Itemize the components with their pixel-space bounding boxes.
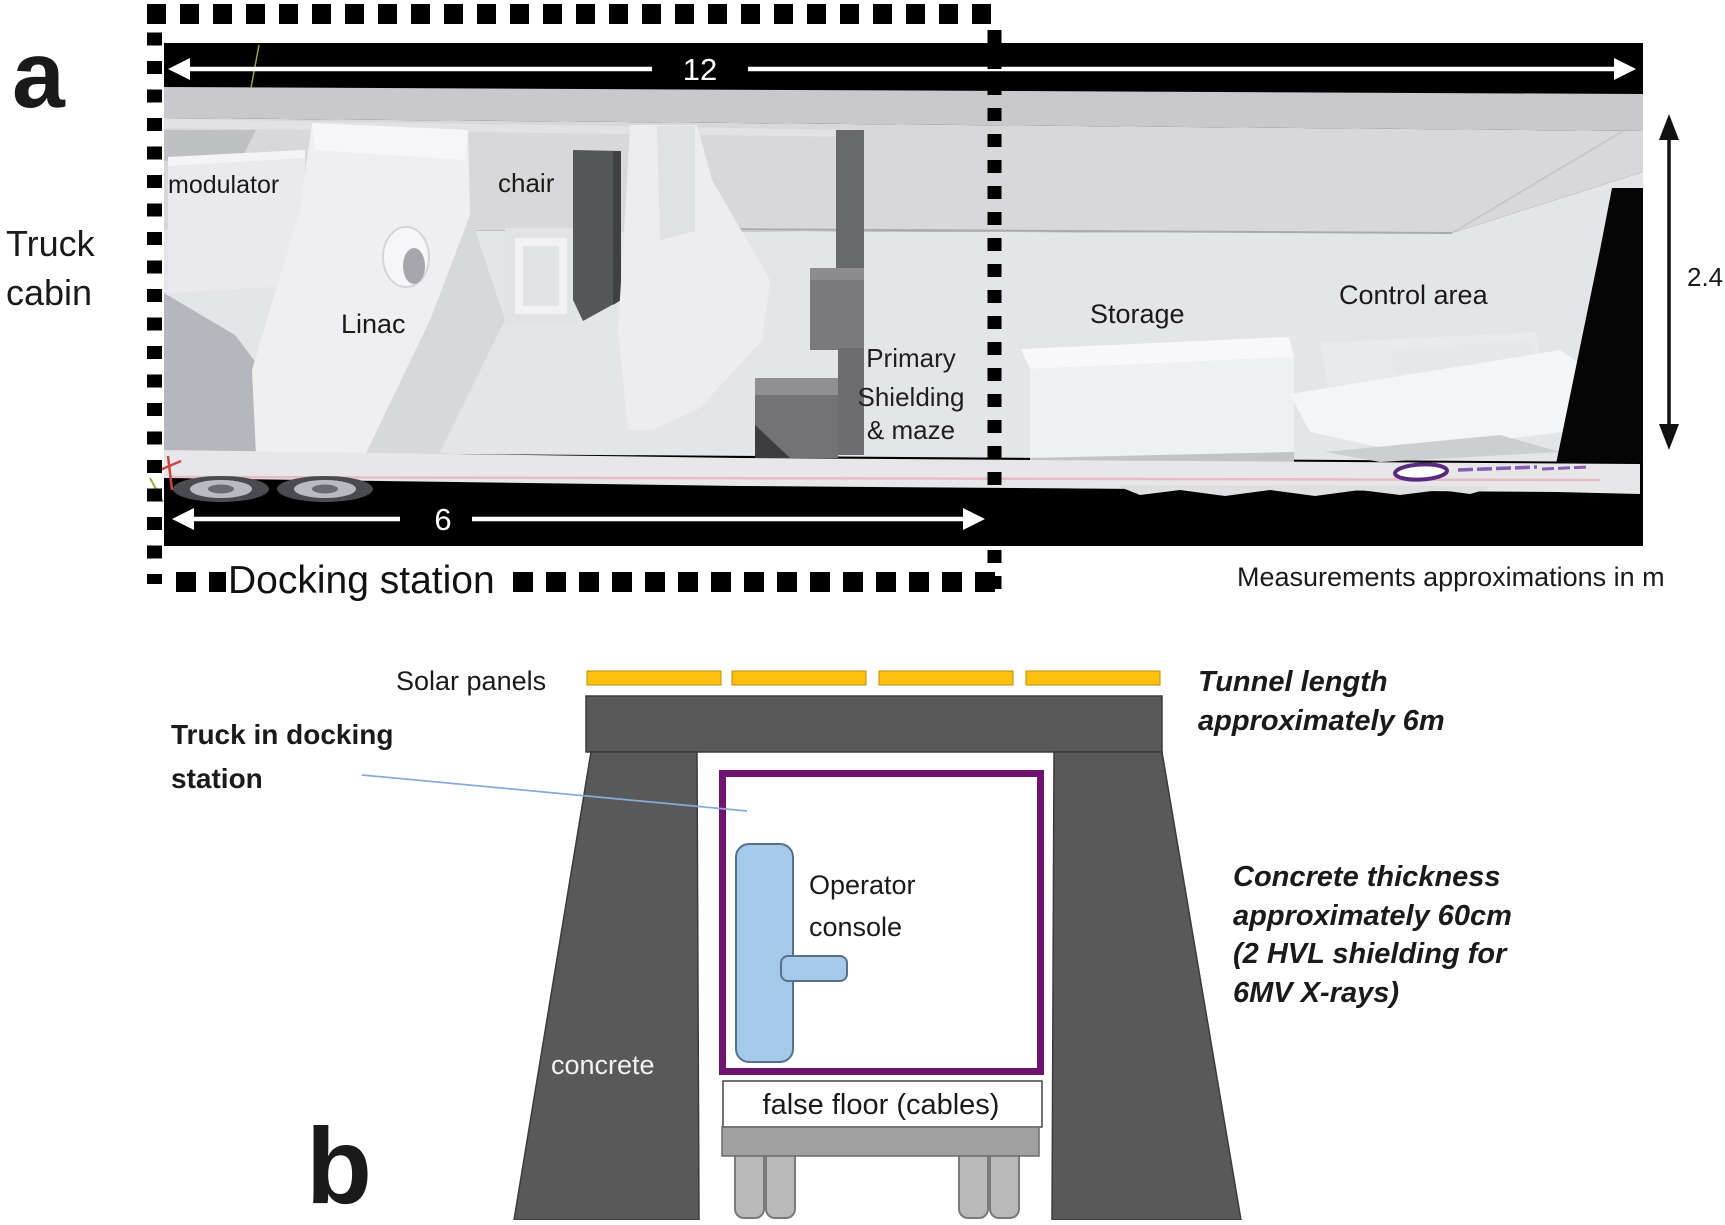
svg-text:Measurements approximations in: Measurements approximations in m [1237,562,1665,592]
svg-text:b: b [306,1105,372,1220]
svg-text:false floor (cables): false floor (cables) [763,1089,1000,1121]
svg-text:chair: chair [498,168,555,198]
svg-text:Truck in docking: Truck in docking [171,719,393,750]
svg-text:modulator: modulator [168,171,279,199]
svg-text:Primary: Primary [866,343,956,373]
svg-text:a: a [12,22,66,128]
svg-text:Linac: Linac [341,309,406,339]
svg-text:Shielding: Shielding [858,382,965,412]
svg-text:(2 HVL shielding for: (2 HVL shielding for [1233,938,1508,970]
svg-text:Control area: Control area [1339,280,1489,310]
svg-text:2.4: 2.4 [1687,262,1723,292]
svg-text:Operator: Operator [809,870,916,900]
svg-text:approximately 60cm: approximately 60cm [1233,900,1512,932]
svg-text:cabin: cabin [6,272,92,313]
svg-text:6: 6 [434,502,451,537]
svg-text:concrete: concrete [551,1050,655,1080]
svg-text:console: console [809,912,902,942]
svg-text:Tunnel length: Tunnel length [1198,666,1388,698]
svg-text:Truck: Truck [6,223,96,264]
svg-text:station: station [171,763,263,794]
svg-text:Storage: Storage [1090,299,1185,329]
svg-text:& maze: & maze [867,415,955,445]
svg-text:Concrete thickness: Concrete thickness [1233,861,1501,893]
svg-text:Solar panels: Solar panels [396,666,546,696]
svg-text:approximately 6m: approximately 6m [1198,705,1445,737]
svg-text:6MV X-rays): 6MV X-rays) [1233,977,1399,1009]
svg-text:12: 12 [683,52,717,87]
svg-text:Docking station: Docking station [228,559,495,602]
